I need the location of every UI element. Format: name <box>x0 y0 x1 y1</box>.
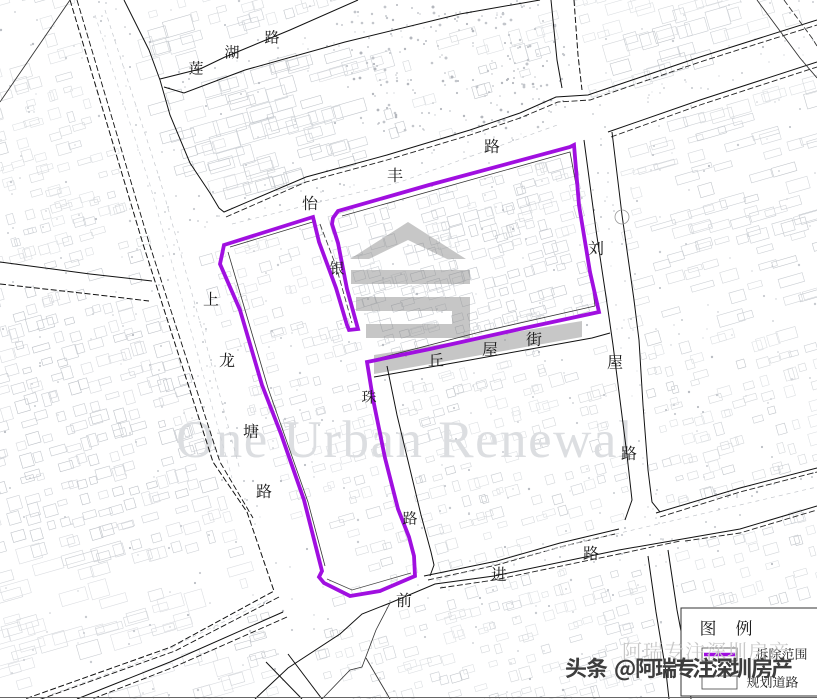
svg-text:One Urban Renewal: One Urban Renewal <box>176 411 634 469</box>
